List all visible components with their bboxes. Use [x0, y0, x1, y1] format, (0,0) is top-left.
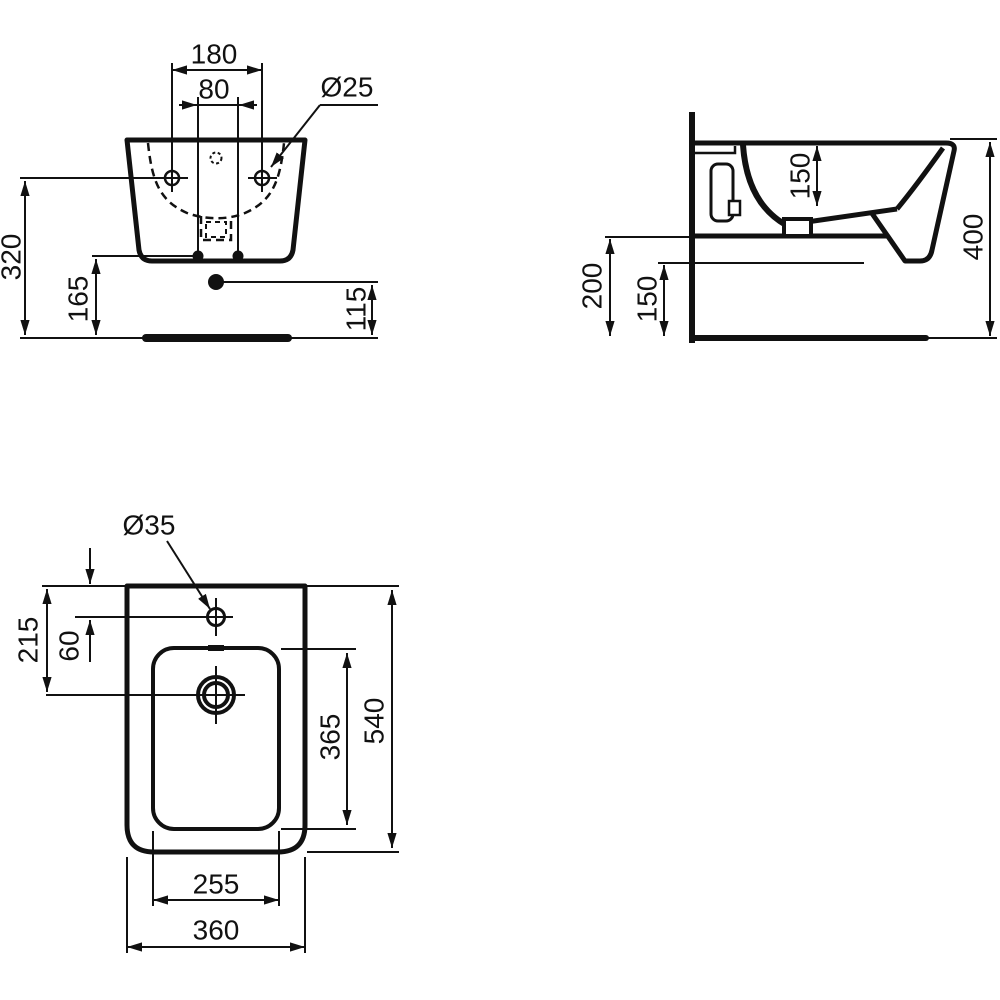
dim-label-320: 320 — [0, 234, 27, 281]
dim-label-150-bowl: 150 — [785, 153, 816, 200]
dim-label-200: 200 — [577, 263, 608, 310]
side-view: 150 400 200 150 — [577, 112, 998, 343]
dim-label-165: 165 — [63, 276, 94, 323]
bowl-rear-wall — [743, 145, 786, 225]
top-view-dimensions: 215 60 Ø35 365 540 255 360 — [13, 510, 400, 954]
dim-label-360: 360 — [193, 915, 240, 946]
drain-hidden-inner — [206, 222, 226, 237]
dim-label-d25: Ø25 — [321, 72, 374, 103]
bowl-hidden-outline — [148, 143, 284, 218]
leader-d25 — [271, 105, 320, 167]
dim-label-d35: Ø35 — [123, 510, 176, 541]
rim-step — [692, 146, 735, 153]
bolt-dot-right — [233, 251, 244, 262]
top-view-body — [46, 586, 305, 852]
fixing-bracket — [729, 201, 740, 215]
dim-label-215: 215 — [13, 617, 44, 664]
dim-label-80: 80 — [198, 74, 229, 105]
overflow-hole — [211, 153, 222, 164]
leader-d35 — [167, 541, 210, 609]
inner-front-wall — [897, 148, 943, 209]
dim-label-150-low: 150 — [632, 276, 663, 323]
front-view: 180 80 Ø25 320 165 115 — [0, 39, 378, 339]
technical-drawing-page: 180 80 Ø25 320 165 115 — [0, 0, 1000, 1000]
dim-label-255: 255 — [193, 869, 240, 900]
dim-label-540: 540 — [359, 698, 390, 745]
drain-fitting — [784, 219, 811, 236]
dim-label-115: 115 — [341, 287, 372, 332]
dim-label-180: 180 — [191, 39, 238, 70]
bidet-dimension-drawing: 180 80 Ø25 320 165 115 — [0, 0, 1000, 1000]
dim-label-60: 60 — [54, 630, 85, 661]
dim-label-400: 400 — [958, 214, 989, 261]
dim-label-365: 365 — [315, 714, 346, 761]
top-view: 215 60 Ø35 365 540 255 360 — [13, 510, 400, 954]
overflow-notch — [208, 645, 224, 651]
front-view-dimensions: 180 80 Ø25 320 165 115 — [0, 39, 378, 336]
